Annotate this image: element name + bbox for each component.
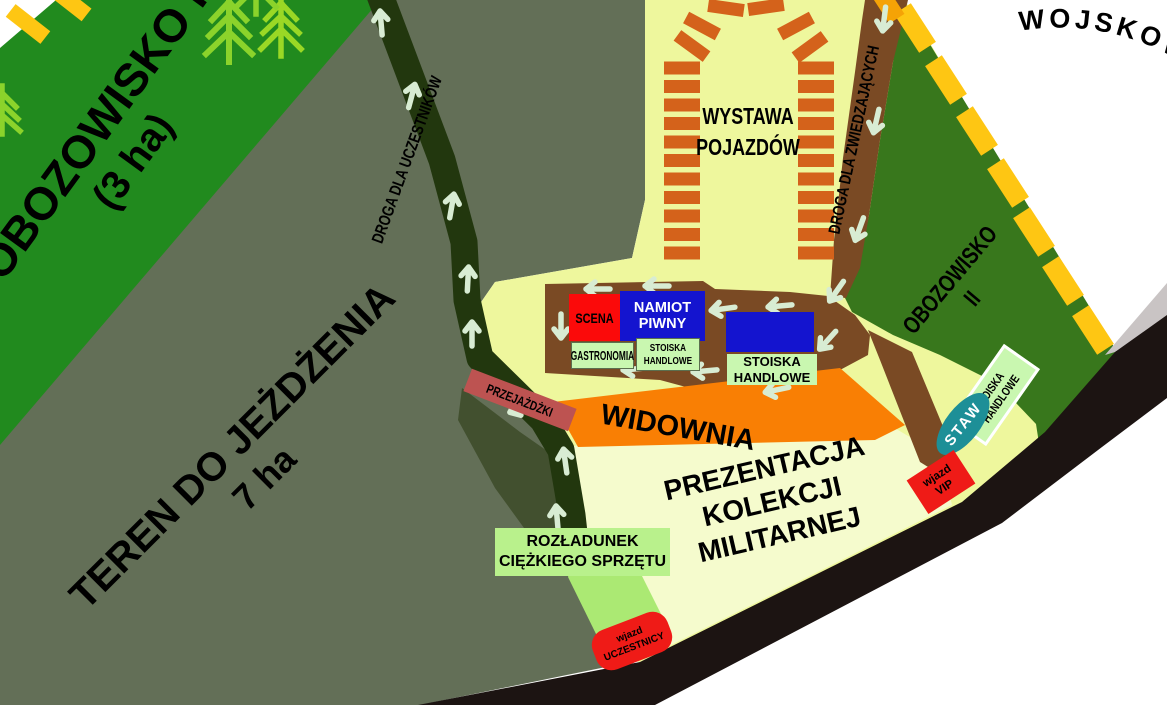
stage-label: SCENA <box>575 310 613 326</box>
vehicle-dash-icon <box>798 191 834 204</box>
zone-wystawa-label: WYSTAWA POJAZDÓW <box>682 101 815 163</box>
vehicle-dash-icon <box>798 173 834 186</box>
vehicle-dash-icon <box>798 80 834 93</box>
vehicle-dash-icon <box>664 62 700 75</box>
vehicle-dash-icon <box>798 62 834 75</box>
stalls-1-label: STOISKA <box>644 342 692 355</box>
vehicle-dash-icon <box>664 191 700 204</box>
beer-tent-label: NAMIOT <box>634 300 691 316</box>
stalls-2-label: STOISKA <box>734 354 811 370</box>
gastronomy-box: GASTRONOMIA <box>571 342 634 369</box>
stage-box: SCENA <box>569 294 620 341</box>
stalls-box-1: STOISKA HANDLOWE <box>636 338 700 371</box>
unloading-area-label: ROZŁADUNEK <box>499 532 666 552</box>
event-site-map: WOJSKOWYCH SCENA NAMIOT PIWNY GASTRONOMI… <box>0 0 1167 705</box>
vehicle-dash-icon <box>664 228 700 241</box>
blue-tent-box <box>726 312 814 352</box>
vehicle-dash-icon <box>664 247 700 260</box>
stalls-box-2: STOISKA HANDLOWE <box>727 354 817 385</box>
unloading-area-box: ROZŁADUNEK CIĘŻKIEGO SPRZĘTU <box>495 528 670 576</box>
vehicle-dash-icon <box>664 80 700 93</box>
beer-tent-box: NAMIOT PIWNY <box>620 291 705 341</box>
logo-arc-text: WOJSKOWYCH <box>1017 3 1167 114</box>
vehicle-dash-icon <box>664 210 700 223</box>
vehicle-dash-icon <box>664 173 700 186</box>
gastronomy-label: GASTRONOMIA <box>571 348 634 363</box>
